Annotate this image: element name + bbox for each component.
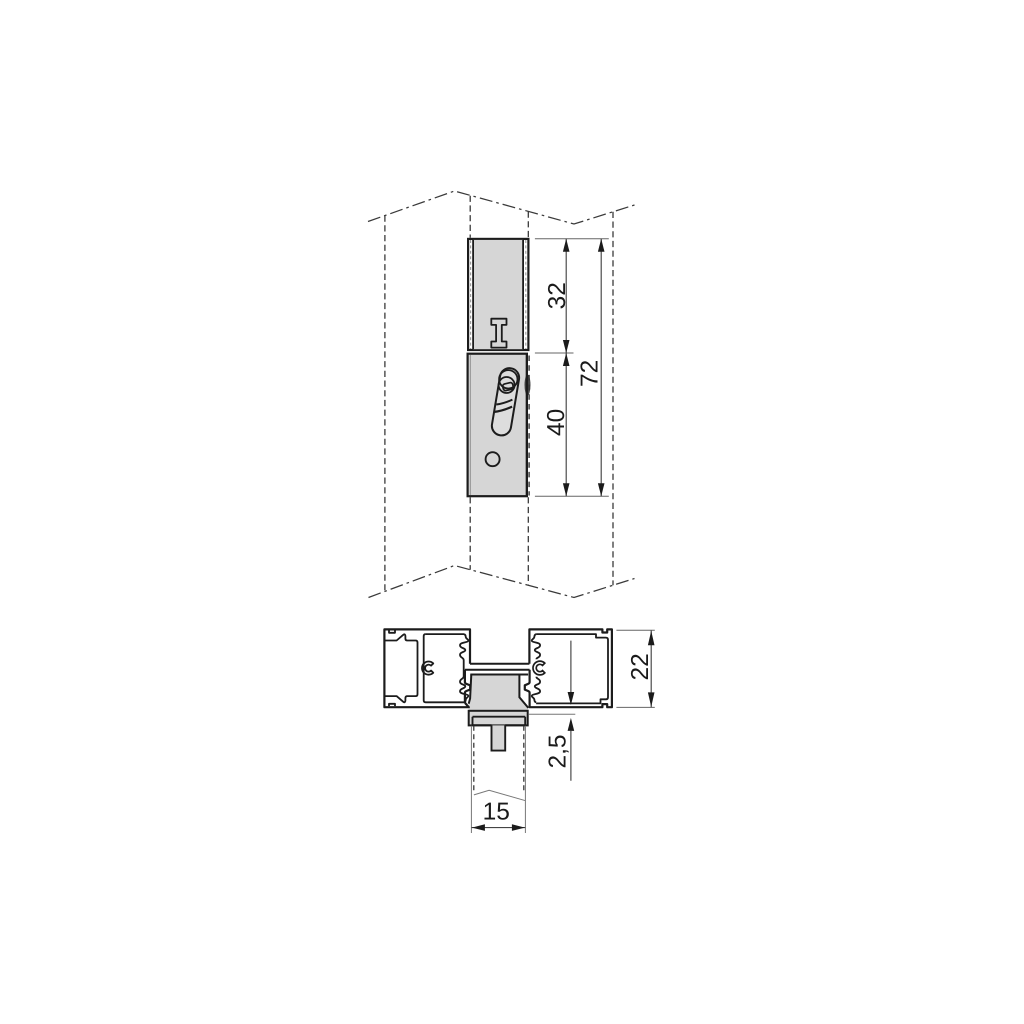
svg-text:40: 40 [543,409,570,436]
svg-text:72: 72 [577,360,604,387]
svg-text:22: 22 [627,653,654,680]
svg-text:2,5: 2,5 [544,734,571,768]
svg-text:15: 15 [483,799,510,826]
svg-text:32: 32 [544,282,571,309]
